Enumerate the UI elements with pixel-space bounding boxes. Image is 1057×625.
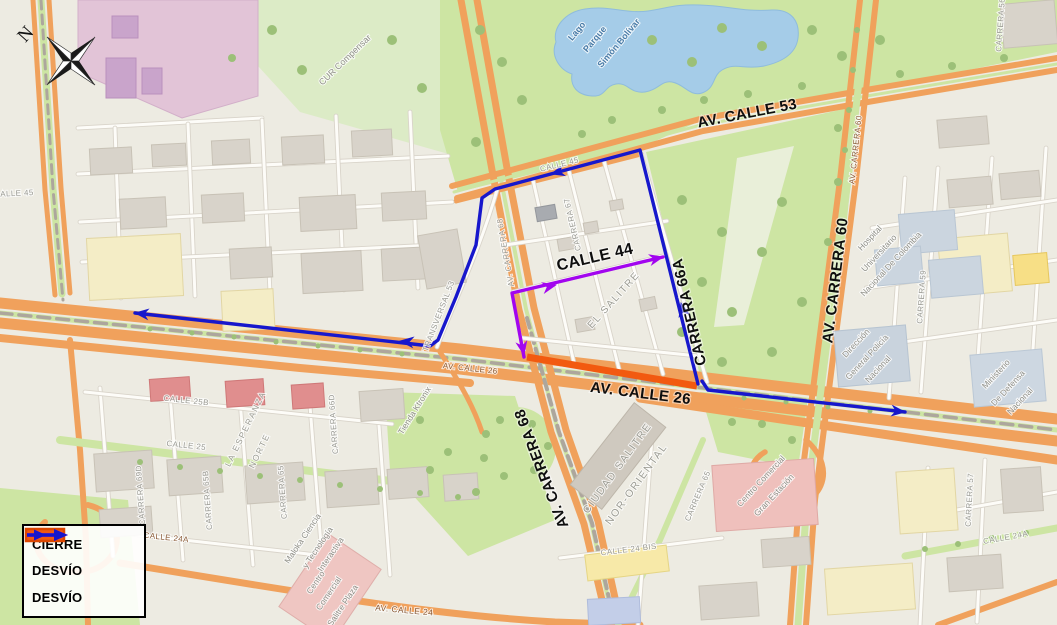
tree-icon — [807, 25, 817, 35]
building — [325, 468, 379, 508]
tree-icon — [297, 477, 303, 483]
building — [229, 247, 273, 279]
tree-icon — [544, 442, 552, 450]
tree-icon — [472, 488, 480, 496]
building — [301, 250, 363, 293]
building — [119, 197, 167, 229]
tree-icon — [697, 277, 707, 287]
tree-icon — [228, 54, 236, 62]
tree-icon — [257, 473, 263, 479]
tree-icon — [578, 130, 586, 138]
tree-icon — [955, 541, 961, 547]
tree-icon — [377, 486, 383, 492]
tree-icon — [480, 454, 488, 462]
tree-icon — [757, 247, 767, 257]
tree-icon — [496, 416, 504, 424]
building — [89, 147, 132, 175]
building — [151, 143, 186, 167]
tree-icon — [658, 106, 666, 114]
tree-icon — [788, 436, 796, 444]
tree-icon — [274, 340, 279, 345]
tree-icon — [316, 344, 321, 349]
legend: CIERREDESVÍODESVÍO — [22, 524, 146, 618]
building — [970, 349, 1046, 407]
building — [937, 116, 989, 148]
tree-icon — [687, 57, 697, 67]
building — [443, 473, 479, 501]
tree-icon — [267, 25, 277, 35]
tree-icon — [846, 107, 852, 113]
tree-icon — [177, 464, 183, 470]
tree-icon — [471, 137, 481, 147]
building — [896, 468, 958, 534]
tree-icon — [475, 25, 485, 35]
tree-icon — [148, 327, 153, 332]
tree-icon — [497, 57, 507, 67]
building — [387, 467, 429, 500]
tree-icon — [717, 357, 727, 367]
map-canvas: LagoParqueSimón BolívarCUR CompensarCALL… — [0, 0, 1057, 625]
building — [609, 199, 624, 211]
building — [94, 450, 155, 492]
tree-icon — [400, 352, 405, 357]
tree-icon — [482, 430, 490, 438]
building — [639, 296, 657, 311]
tree-icon — [717, 227, 727, 237]
building — [381, 191, 426, 221]
building — [112, 16, 138, 38]
tree-icon — [854, 27, 860, 33]
tree-icon — [742, 396, 747, 401]
traffic-detour-map: LagoParqueSimón BolívarCUR CompensarCALL… — [0, 0, 1057, 625]
building — [587, 597, 640, 625]
tree-icon — [500, 472, 508, 480]
building — [761, 536, 811, 567]
tree-icon — [797, 297, 807, 307]
building — [928, 256, 983, 298]
building — [1001, 467, 1044, 514]
building — [535, 204, 557, 221]
building — [999, 170, 1041, 199]
tree-icon — [922, 546, 928, 552]
tree-icon — [232, 335, 237, 340]
building — [281, 135, 324, 165]
tree-icon — [426, 466, 434, 474]
tree-icon — [417, 490, 423, 496]
legend-label: DESVÍO — [32, 563, 82, 578]
building — [351, 129, 392, 157]
tree-icon — [757, 41, 767, 51]
legend-row-detour-1: DESVÍO — [32, 563, 136, 578]
tree-icon — [190, 331, 195, 336]
tree-icon — [777, 197, 787, 207]
tree-icon — [416, 416, 424, 424]
building — [106, 58, 136, 98]
detour-arrow-icon — [24, 526, 70, 544]
tree-icon — [744, 90, 752, 98]
tree-icon — [834, 124, 842, 132]
legend-row-detour-2: DESVÍO — [32, 590, 136, 605]
tree-icon — [834, 178, 842, 186]
tree-icon — [137, 459, 143, 465]
building — [86, 234, 183, 301]
tree-icon — [677, 195, 687, 205]
tree-icon — [896, 70, 904, 78]
building — [291, 383, 325, 409]
tree-icon — [842, 147, 848, 153]
tree-icon — [608, 116, 616, 124]
tree-icon — [337, 482, 343, 488]
tree-icon — [727, 307, 737, 317]
building — [201, 193, 244, 223]
building — [947, 176, 993, 208]
building — [418, 229, 467, 289]
building — [359, 389, 405, 422]
building — [699, 582, 759, 620]
tree-icon — [798, 82, 806, 90]
tree-icon — [387, 35, 397, 45]
building — [947, 554, 1003, 592]
building — [825, 563, 916, 615]
tree-icon — [850, 67, 856, 73]
tree-icon — [1000, 54, 1008, 62]
legend-label: DESVÍO — [32, 590, 82, 605]
building — [1013, 253, 1049, 286]
building — [211, 139, 250, 165]
building — [167, 456, 223, 496]
tree-icon — [717, 23, 727, 33]
tree-icon — [217, 468, 223, 474]
tree-icon — [358, 348, 363, 353]
tree-icon — [455, 494, 461, 500]
tree-icon — [444, 448, 452, 456]
tree-icon — [417, 83, 427, 93]
tree-icon — [767, 347, 777, 357]
tree-icon — [837, 51, 847, 61]
building — [299, 195, 357, 232]
tree-icon — [647, 35, 657, 45]
building — [583, 221, 599, 234]
tree-icon — [517, 95, 527, 105]
tree-icon — [700, 96, 708, 104]
building — [1000, 0, 1057, 48]
building — [142, 68, 162, 94]
tree-icon — [728, 418, 736, 426]
tree-icon — [758, 420, 766, 428]
tree-icon — [875, 35, 885, 45]
tree-icon — [297, 65, 307, 75]
tree-icon — [948, 62, 956, 70]
